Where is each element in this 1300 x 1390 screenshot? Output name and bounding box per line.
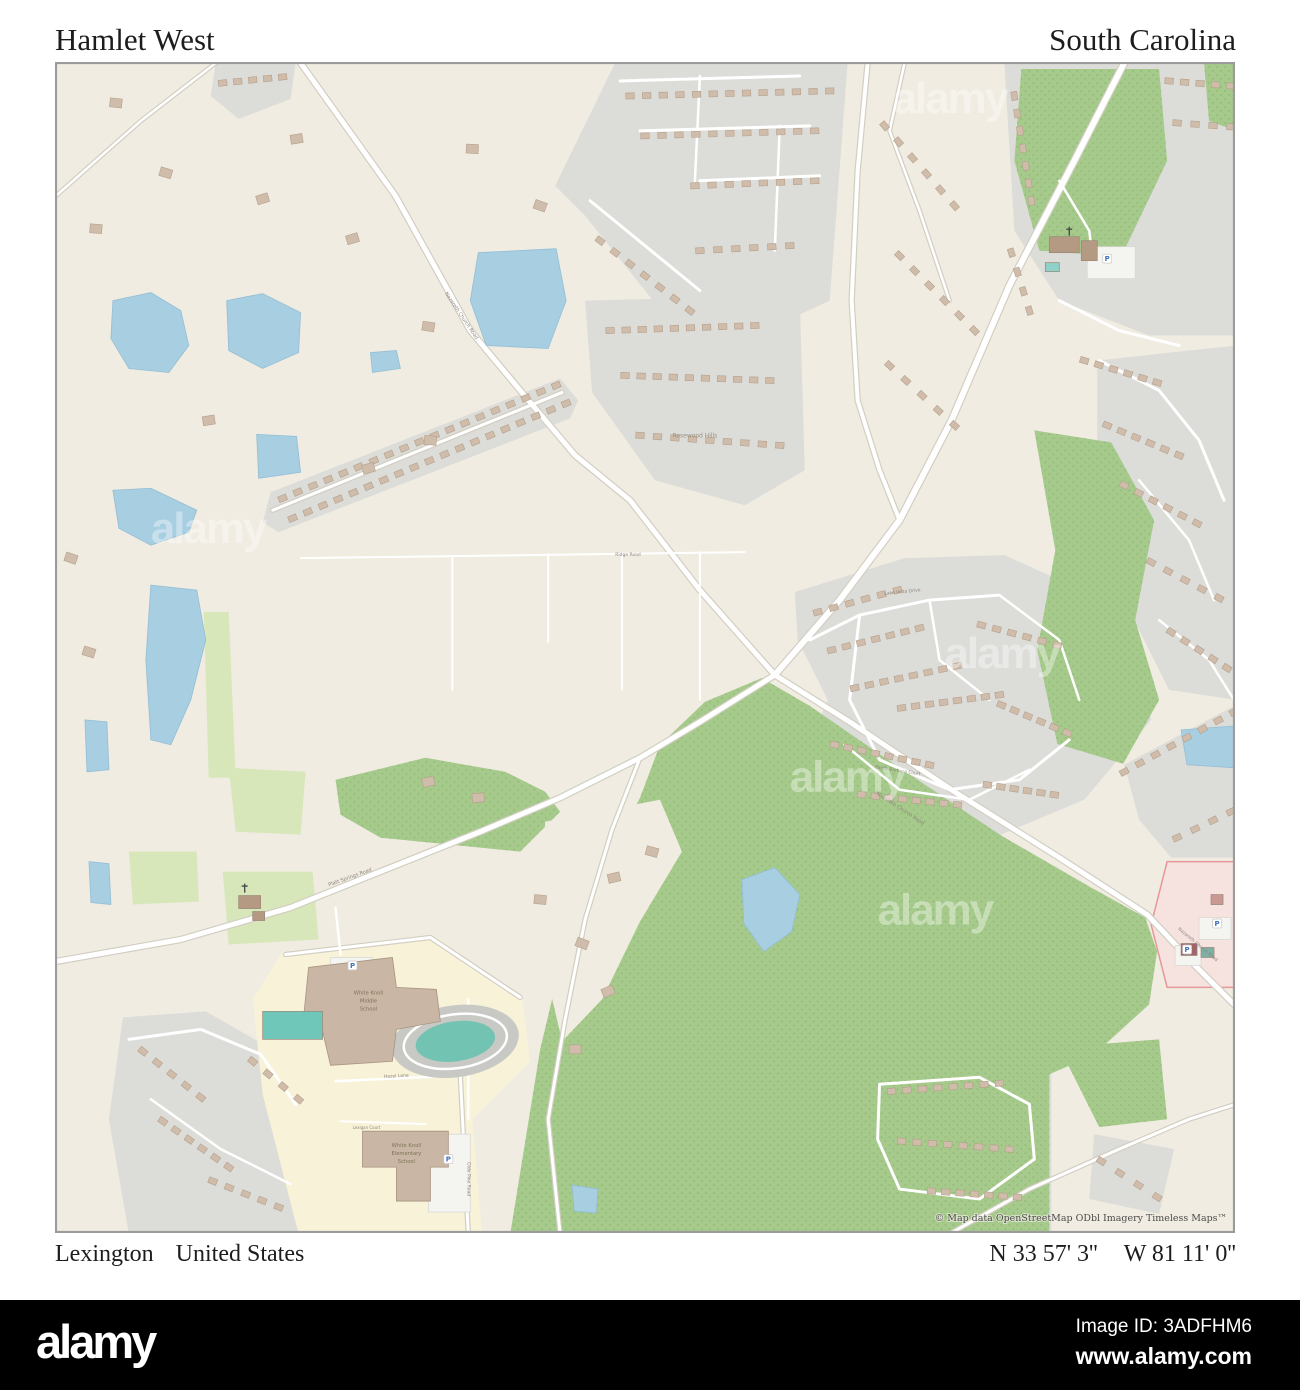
image-id: Image ID: 3ADFHM6 (1076, 1316, 1252, 1338)
alamy-logo: alamy (36, 1314, 154, 1369)
caption-country: United States (176, 1241, 305, 1267)
map-label: Lexigan Court (353, 1125, 381, 1130)
svg-text:P: P (1214, 920, 1219, 928)
alamy-url: www.alamy.com (1076, 1343, 1252, 1370)
bottom-bar: alamy Image ID: 3ADFHM6 www.alamy.com (0, 1300, 1300, 1390)
alamy-watermark: alamy (790, 753, 907, 802)
map-attribution: © Map data OpenStreetMap ODbl Imagery Ti… (935, 1213, 1227, 1224)
alamy-watermark: alamy (893, 74, 1010, 123)
parking-icon: P (1213, 919, 1222, 928)
map-label: School (398, 1159, 415, 1165)
parking-icon: P (1103, 254, 1112, 263)
map-label: White Knoll (392, 1143, 421, 1149)
caption-latitude: N 33 57' 3'' (989, 1241, 1097, 1267)
parking-icon: P (1183, 945, 1192, 954)
map-attribution-layer: © Map data OpenStreetMap ODbl Imagery Ti… (935, 1213, 1227, 1224)
map-label: Elementary (391, 1151, 421, 1157)
parking-icon: P (348, 961, 357, 970)
parking-icon: P (444, 1155, 453, 1164)
map-frame: PPPPPRosewood HillsNazareth Church RoadN… (55, 62, 1235, 1233)
caption-longitude: W 81 11' 0'' (1124, 1241, 1236, 1267)
alamy-watermark: alamy (151, 504, 268, 553)
map-label: Ridge Road (615, 552, 641, 558)
map-label: Rosewood Hills (673, 432, 718, 439)
map-label: Middle (360, 998, 377, 1004)
region-title: South Carolina (1049, 22, 1236, 58)
caption-coordinates: N 33 57' 3''W 81 11' 0'' (963, 1241, 1236, 1268)
bottom-bar-info: Image ID: 3ADFHM6 www.alamy.com (1076, 1316, 1252, 1370)
caption-place: Lexington (55, 1241, 154, 1267)
svg-text:P: P (446, 1156, 451, 1164)
svg-text:P: P (1185, 946, 1190, 954)
page-title: Hamlet West (55, 22, 215, 58)
map-label: White Knoll (354, 990, 383, 996)
map-label: Olde Pine Road (465, 1162, 471, 1196)
svg-text:P: P (1105, 255, 1110, 263)
map-canvas: PPPPPRosewood HillsNazareth Church RoadN… (56, 63, 1234, 1232)
page-root: Hamlet West South Carolina PPPPPRosewood… (0, 0, 1300, 1390)
alamy-watermark: alamy (944, 629, 1061, 678)
caption-location: LexingtonUnited States (55, 1241, 326, 1268)
map-label: School (360, 1006, 377, 1012)
alamy-watermark: alamy (878, 886, 995, 935)
svg-text:P: P (350, 962, 355, 970)
